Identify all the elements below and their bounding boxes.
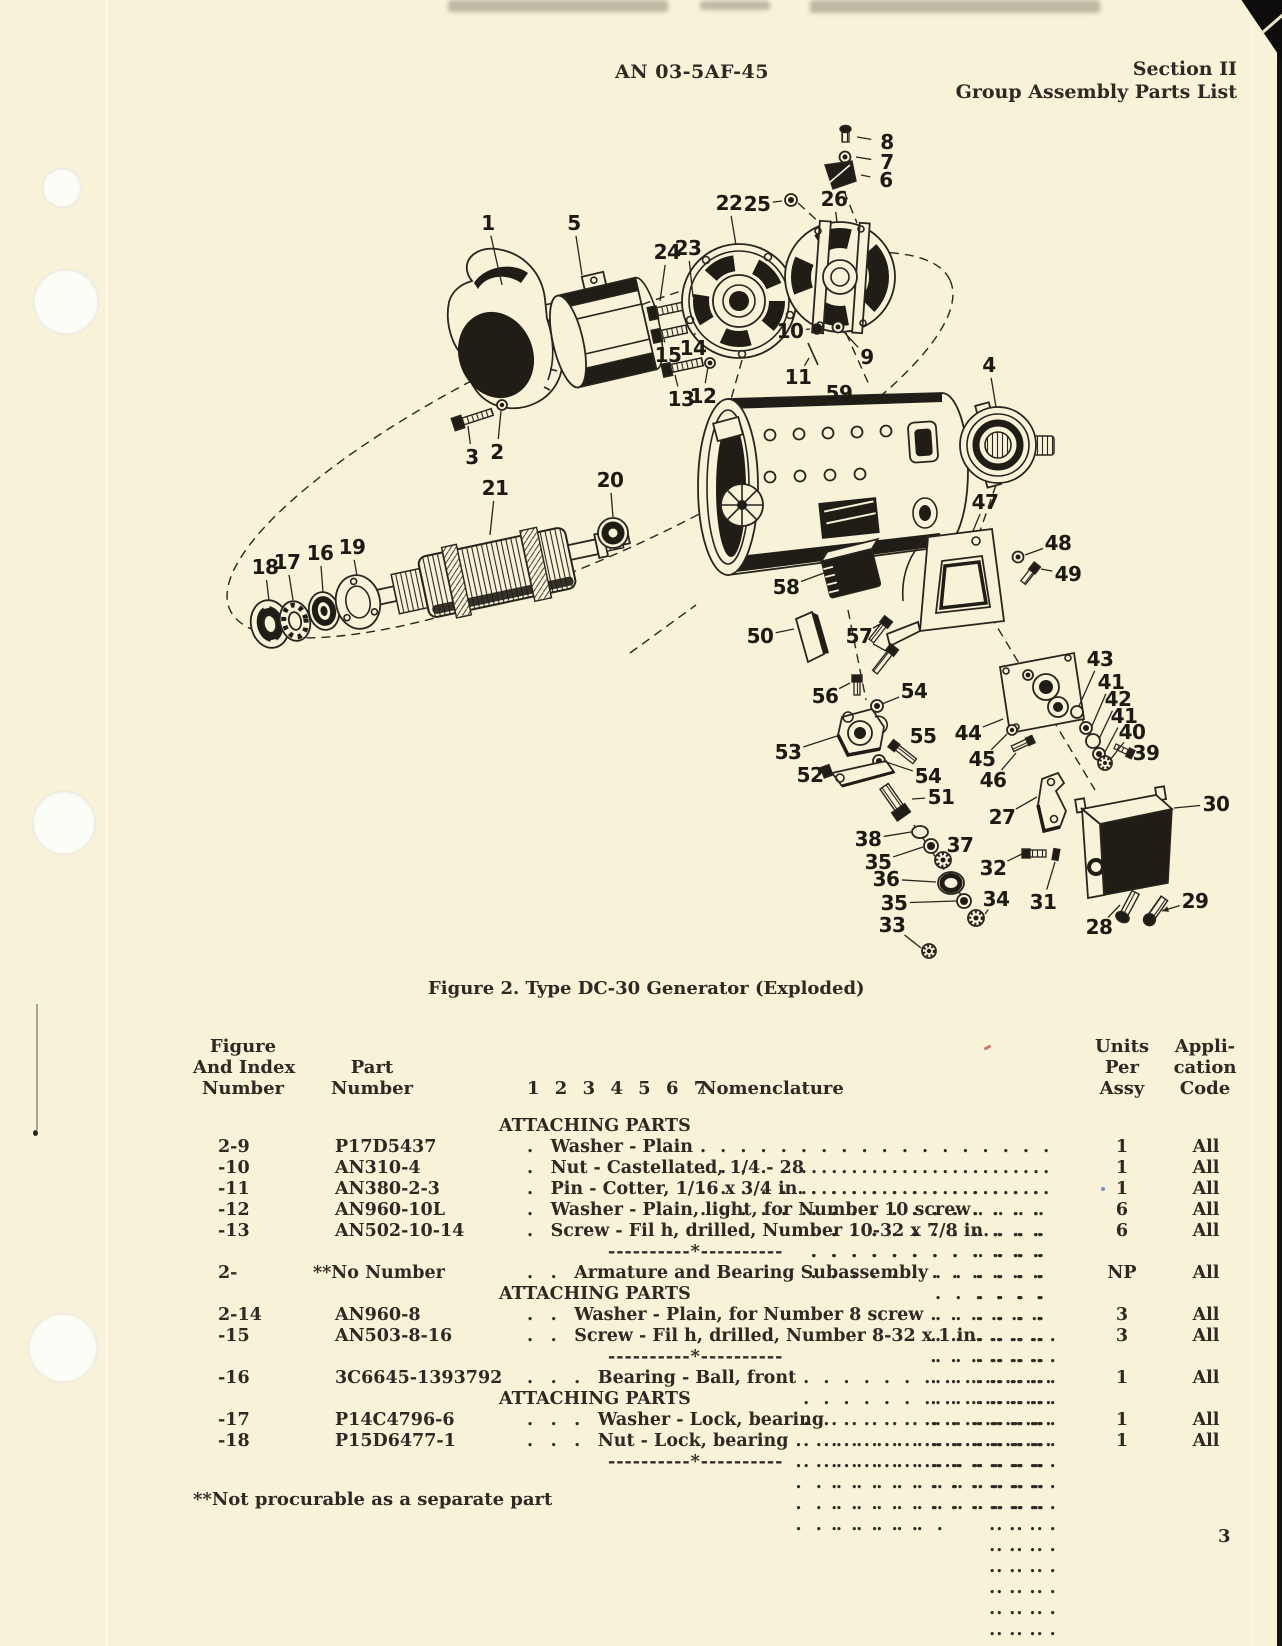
callout-26: 26 bbox=[821, 187, 848, 211]
col-nomenclature-header: Nomenclature bbox=[700, 1078, 844, 1099]
leader-line bbox=[1079, 671, 1095, 706]
part-21-armature bbox=[354, 509, 638, 637]
leader-line bbox=[773, 201, 782, 202]
callout-27: 27 bbox=[989, 805, 1016, 829]
part-41-washer bbox=[1080, 722, 1092, 734]
part-number-cell: P17D5437 bbox=[335, 1137, 436, 1158]
table-row: ----------*---------- bbox=[0, 1242, 1282, 1263]
callout-21: 21 bbox=[482, 476, 509, 500]
part-31-pin bbox=[1052, 849, 1060, 861]
units-cell: 6 bbox=[1098, 1200, 1146, 1221]
index-cell: 2-9 bbox=[218, 1137, 250, 1158]
part-number-cell: AN503-8-16 bbox=[335, 1326, 452, 1347]
leader-line bbox=[844, 332, 858, 347]
table-row: -12AN960-10L. Washer - Plain, light, for… bbox=[0, 1200, 1282, 1221]
section-label: ATTACHING PARTS bbox=[499, 1116, 691, 1137]
table-row: ----------*---------- bbox=[0, 1452, 1282, 1473]
index-cell: -10 bbox=[218, 1158, 250, 1179]
table-row: 2-9P17D5437. Washer - Plain . . . . . . … bbox=[0, 1137, 1282, 1158]
leader-line bbox=[873, 644, 886, 651]
callout-33: 33 bbox=[879, 913, 906, 937]
callout-44: 44 bbox=[955, 721, 982, 745]
table-row: ATTACHING PARTS bbox=[0, 1116, 1282, 1137]
leader-line bbox=[882, 697, 899, 704]
part-1-air-scoop bbox=[445, 249, 562, 410]
leader-line bbox=[856, 157, 871, 159]
leader-line bbox=[321, 566, 323, 592]
part-number-cell: AN310-4 bbox=[335, 1158, 421, 1179]
table-row: ATTACHING PARTS bbox=[0, 1284, 1282, 1305]
section-label: ATTACHING PARTS bbox=[499, 1389, 691, 1410]
leader-line bbox=[902, 880, 936, 882]
callout-37: 37 bbox=[947, 833, 974, 857]
leader-line bbox=[905, 935, 921, 948]
part-25-nut bbox=[785, 194, 797, 206]
table-row: -18P15D6477-1. . . Nut - Lock, bearing .… bbox=[0, 1431, 1282, 1452]
bleedthrough-mark bbox=[700, 1, 770, 10]
callout-17: 17 bbox=[274, 550, 301, 574]
table-row: -17P14C4796-6. . . Washer - Lock, bearin… bbox=[0, 1410, 1282, 1431]
nomenclature-cell: . . . Nut - Lock, bearing . . . . . . . … bbox=[527, 1431, 1061, 1536]
index-cell: -13 bbox=[218, 1221, 250, 1242]
callout-47: 47 bbox=[972, 490, 999, 514]
leader-line bbox=[983, 719, 1003, 727]
col-figure-header-1: Figure bbox=[193, 1036, 293, 1057]
callout-16: 16 bbox=[307, 541, 334, 565]
leader-line bbox=[611, 493, 613, 517]
callout-32: 32 bbox=[980, 856, 1007, 880]
col-figure-header-2: And Index bbox=[193, 1057, 293, 1078]
units-cell: 1 bbox=[1098, 1368, 1146, 1389]
part-29-screw bbox=[1141, 895, 1169, 928]
page-number: 3 bbox=[1218, 1526, 1231, 1547]
figure-caption: Figure 2. Type DC-30 Generator (Exploded… bbox=[428, 978, 828, 999]
part-48-nut bbox=[1013, 552, 1024, 563]
section-label: ATTACHING PARTS bbox=[499, 1284, 691, 1305]
part-number-cell: 3C6645-1393792 bbox=[335, 1368, 502, 1389]
callout-34: 34 bbox=[983, 887, 1010, 911]
table-row: 2-14AN960-8. . Washer - Plain, for Numbe… bbox=[0, 1305, 1282, 1326]
units-cell: 1 bbox=[1098, 1158, 1146, 1179]
callout-59: 59 bbox=[826, 381, 853, 405]
corner-crease bbox=[1238, 4, 1282, 55]
callout-5: 5 bbox=[567, 211, 580, 235]
index-cell: 2-14 bbox=[218, 1305, 262, 1326]
part-30-filter-box bbox=[1075, 786, 1172, 898]
bleedthrough-mark bbox=[810, 0, 1100, 13]
part-34-nut bbox=[968, 910, 984, 926]
callout-4: 4 bbox=[982, 353, 995, 377]
part-3-screw bbox=[451, 406, 494, 431]
part-9-washer bbox=[833, 322, 844, 333]
part-54-washer bbox=[871, 700, 883, 712]
part-52-arm bbox=[821, 761, 894, 786]
callout-9: 9 bbox=[860, 345, 873, 369]
col-code-header-2: cation bbox=[1165, 1057, 1245, 1078]
code-cell: All bbox=[1174, 1431, 1238, 1452]
part-19-plate bbox=[331, 571, 385, 633]
part-32-screw bbox=[1022, 849, 1046, 858]
callout-46: 46 bbox=[980, 768, 1007, 792]
leader-line bbox=[912, 798, 925, 799]
section-header: Section II Group Assembly Parts List bbox=[956, 58, 1237, 104]
callout-20: 20 bbox=[597, 468, 624, 492]
leader-line bbox=[1047, 862, 1055, 890]
code-cell: All bbox=[1174, 1137, 1238, 1158]
units-cell: 1 bbox=[1098, 1410, 1146, 1431]
part-number-cell: AN502-10-14 bbox=[335, 1221, 464, 1242]
callout-23: 23 bbox=[675, 236, 702, 260]
part-35-washer bbox=[924, 839, 938, 853]
bleedthrough-mark bbox=[448, 0, 668, 12]
callout-55: 55 bbox=[910, 724, 937, 748]
units-cell: 3 bbox=[1098, 1326, 1146, 1347]
punch-hole bbox=[42, 168, 82, 208]
leader-line bbox=[267, 580, 269, 601]
separator: ----------*---------- bbox=[608, 1452, 783, 1473]
code-cell: All bbox=[1174, 1410, 1238, 1431]
callout-22: 22 bbox=[716, 191, 743, 215]
punch-hole bbox=[33, 269, 99, 335]
callout-15: 15 bbox=[655, 343, 682, 367]
part-2-washer bbox=[497, 400, 507, 410]
section-title: Section II bbox=[956, 58, 1237, 81]
leader-line bbox=[836, 212, 837, 222]
leader-line bbox=[1041, 569, 1052, 571]
callout-14: 14 bbox=[680, 336, 707, 360]
parts-table: ATTACHING PARTS2-9P17D5437. Washer - Pla… bbox=[0, 1116, 1282, 1473]
dashed-connector bbox=[630, 605, 696, 653]
code-cell: All bbox=[1174, 1158, 1238, 1179]
part-44-terminal-plate bbox=[1000, 653, 1084, 733]
leader-line bbox=[801, 573, 824, 581]
part-number-cell: AN380-2-3 bbox=[335, 1179, 440, 1200]
callout-3: 3 bbox=[465, 445, 478, 469]
code-cell: All bbox=[1174, 1179, 1238, 1200]
leader-line bbox=[1016, 797, 1037, 809]
leader-line bbox=[1007, 854, 1022, 861]
units-cell: 1 bbox=[1098, 1431, 1146, 1452]
units-cell: 3 bbox=[1098, 1305, 1146, 1326]
leader-line bbox=[705, 367, 708, 383]
callout-38: 38 bbox=[855, 827, 882, 851]
code-cell: All bbox=[1174, 1200, 1238, 1221]
leader-line bbox=[861, 175, 870, 177]
units-cell: NP bbox=[1098, 1263, 1146, 1284]
section-subtitle: Group Assembly Parts List bbox=[956, 81, 1237, 104]
leader-line bbox=[803, 735, 840, 747]
leader-line bbox=[660, 265, 665, 301]
col-figure-header-3: Number bbox=[193, 1078, 293, 1099]
callout-29: 29 bbox=[1182, 889, 1209, 913]
part-20-washer bbox=[598, 518, 628, 548]
leader-line bbox=[289, 575, 293, 600]
separator: ----------*---------- bbox=[608, 1347, 783, 1368]
dashed-connector bbox=[798, 203, 822, 225]
col-units-header-2: Per bbox=[1082, 1057, 1162, 1078]
table-row: -11AN380-2-3. Pin - Cotter, 1/16 x 3/4 i… bbox=[0, 1179, 1282, 1200]
code-cell: All bbox=[1174, 1326, 1238, 1347]
part-12-washer bbox=[705, 358, 715, 368]
part-6-brush-cap bbox=[825, 161, 856, 189]
leader-line bbox=[1025, 548, 1043, 555]
leader-line bbox=[731, 216, 736, 245]
col-code-header-1: Appli- bbox=[1165, 1036, 1245, 1057]
callout-35: 35 bbox=[881, 891, 908, 915]
index-cell: -18 bbox=[218, 1431, 250, 1452]
callout-51: 51 bbox=[928, 785, 955, 809]
index-cell: -17 bbox=[218, 1410, 250, 1431]
part-number-cell: AN960-10L bbox=[335, 1200, 445, 1221]
callout-11: 11 bbox=[785, 365, 812, 389]
part-40-nut bbox=[1098, 756, 1112, 770]
leader-line bbox=[857, 137, 871, 139]
index-cell: -11 bbox=[218, 1179, 250, 1200]
col-index-numbers-header: 1 2 3 4 5 6 7 bbox=[527, 1078, 706, 1099]
callout-53: 53 bbox=[775, 740, 802, 764]
table-row: -10AN310-4. Nut - Castellated, 1/4 - 28 … bbox=[0, 1158, 1282, 1179]
col-part-header-1: Part bbox=[322, 1057, 422, 1078]
col-part-header-2: Number bbox=[322, 1078, 422, 1099]
callout-31: 31 bbox=[1030, 890, 1057, 914]
part-4-end-bell bbox=[960, 402, 1054, 487]
leader-line bbox=[893, 847, 923, 857]
part-26-field-assembly bbox=[785, 221, 895, 333]
part-49-screw bbox=[1020, 562, 1040, 585]
index-cell: -16 bbox=[218, 1368, 250, 1389]
code-cell: All bbox=[1174, 1221, 1238, 1242]
part-number-cell: P15D6477-1 bbox=[335, 1431, 456, 1452]
index-cell: 2- bbox=[218, 1263, 237, 1284]
callout-30: 30 bbox=[1203, 792, 1230, 816]
code-cell: All bbox=[1174, 1263, 1238, 1284]
pencil-mark bbox=[36, 1004, 38, 1130]
callout-28: 28 bbox=[1086, 915, 1113, 939]
index-cell: -15 bbox=[218, 1326, 250, 1347]
callout-58: 58 bbox=[773, 575, 800, 599]
doc-number: AN 03-5AF-45 bbox=[592, 61, 792, 83]
part-56-screw bbox=[852, 675, 862, 695]
ink-speck bbox=[984, 1044, 992, 1050]
leader-line bbox=[973, 514, 980, 531]
leader-line bbox=[839, 683, 850, 689]
part-51-screw bbox=[877, 782, 911, 821]
callout-48: 48 bbox=[1045, 531, 1072, 555]
part-46-screw bbox=[1011, 735, 1035, 752]
callout-57: 57 bbox=[846, 624, 873, 648]
folded-corner bbox=[1230, 0, 1282, 60]
leader-line bbox=[991, 378, 996, 407]
punch-hole bbox=[32, 791, 96, 855]
callout-52: 52 bbox=[797, 763, 824, 787]
leader-line bbox=[490, 501, 494, 535]
units-cell: 6 bbox=[1098, 1221, 1146, 1242]
dashed-connector bbox=[730, 360, 742, 403]
part-33-nut bbox=[922, 944, 936, 958]
col-units-header-1: Units bbox=[1082, 1036, 1162, 1057]
part-number-cell: P14C4796-6 bbox=[335, 1410, 455, 1431]
code-cell: All bbox=[1174, 1305, 1238, 1326]
part-45-washer bbox=[1007, 725, 1017, 735]
table-row: -15AN503-8-16. . Screw - Fil h, drilled,… bbox=[0, 1326, 1282, 1347]
separator: ----------*---------- bbox=[608, 1242, 783, 1263]
table-row: -163C6645-1393792. . . Bearing - Ball, f… bbox=[0, 1368, 1282, 1389]
code-cell: All bbox=[1174, 1368, 1238, 1389]
col-code-header-3: Code bbox=[1165, 1078, 1245, 1099]
leader-line bbox=[776, 629, 794, 633]
leader-line bbox=[468, 426, 470, 444]
part-43-washer bbox=[1071, 706, 1083, 718]
callout-43: 43 bbox=[1087, 647, 1114, 671]
callout-56: 56 bbox=[812, 684, 839, 708]
callout-6: 6 bbox=[879, 168, 892, 192]
table-row: ----------*---------- bbox=[0, 1347, 1282, 1368]
table-row: -13AN502-10-14. Screw - Fil h, drilled, … bbox=[0, 1221, 1282, 1242]
callout-25: 25 bbox=[744, 192, 771, 216]
part-number-cell: **No Number bbox=[313, 1263, 445, 1284]
callout-50: 50 bbox=[747, 624, 774, 648]
part-50-brush-spring bbox=[796, 612, 829, 662]
callout-19: 19 bbox=[339, 535, 366, 559]
manual-page: AN 03-5AF-45 Section II Group Assembly P… bbox=[0, 0, 1282, 1646]
leader-line bbox=[664, 339, 665, 342]
index-cell: -12 bbox=[218, 1200, 250, 1221]
part-36-ring bbox=[938, 872, 964, 894]
exploded-diagram: 1587622252624231514131210911594322120181… bbox=[130, 105, 1260, 965]
leader-line bbox=[884, 832, 911, 836]
callout-49: 49 bbox=[1055, 562, 1082, 586]
callout-2: 2 bbox=[490, 440, 503, 464]
part-35-washer-2 bbox=[957, 894, 971, 908]
part-27-bracket bbox=[1038, 773, 1066, 831]
part-number-cell: AN960-8 bbox=[335, 1305, 421, 1326]
part-11-cotter-pin bbox=[808, 343, 818, 365]
leader-line bbox=[910, 901, 956, 902]
table-row: 2-**No Number. . Armature and Bearing Su… bbox=[0, 1263, 1282, 1284]
callout-10: 10 bbox=[777, 319, 804, 343]
part-42-washer bbox=[1086, 734, 1100, 748]
callout-39: 39 bbox=[1133, 741, 1160, 765]
part-53-brush-holder bbox=[838, 709, 887, 755]
footnote: **Not procurable as a separate part bbox=[193, 1489, 552, 1510]
callout-12: 12 bbox=[690, 384, 717, 408]
leader-line bbox=[1174, 806, 1200, 808]
table-row: ATTACHING PARTS bbox=[0, 1389, 1282, 1410]
leader-line bbox=[675, 375, 678, 386]
callout-36: 36 bbox=[873, 867, 900, 891]
units-cell: 1 bbox=[1098, 1137, 1146, 1158]
part-10-nut bbox=[812, 324, 822, 334]
callout-1: 1 bbox=[481, 211, 494, 235]
col-units-header-3: Assy bbox=[1082, 1078, 1162, 1099]
leader-line bbox=[498, 411, 501, 439]
part-38-washer bbox=[912, 826, 928, 838]
callout-54: 54 bbox=[901, 679, 928, 703]
units-cell: 1 bbox=[1098, 1179, 1146, 1200]
leader-line bbox=[576, 236, 582, 275]
part-8-screw bbox=[840, 126, 851, 143]
leader-line bbox=[354, 560, 357, 576]
